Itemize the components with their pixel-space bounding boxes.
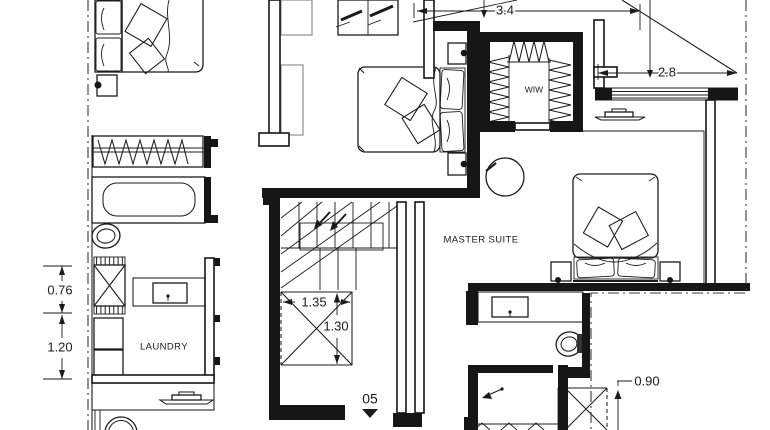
level-number-text: 05 [362, 391, 378, 407]
window-right [595, 88, 738, 100]
dim-duct-width: 0.90 [615, 373, 660, 430]
toilet-master-bath [553, 328, 586, 359]
wiw-hangers [488, 41, 571, 125]
nightstand-top-left [95, 75, 118, 96]
nightstand-master-right [660, 262, 680, 283]
dim-duct-width-text: 0.90 [634, 373, 659, 388]
dim-right-width: 2.8 [598, 0, 737, 80]
bathtub [92, 177, 205, 223]
toilet-left [90, 222, 121, 250]
stairs [281, 202, 397, 290]
floor-plan-canvas: 3.4 2.8 0.76 1.20 1.35 1.30 0.90 [0, 0, 770, 430]
water-heater [105, 417, 137, 430]
ac-louver [160, 392, 213, 404]
laundry-sink-counter [133, 278, 205, 306]
balcony-band [92, 383, 214, 430]
bed-master [573, 174, 658, 281]
shower-arrow-icon [482, 387, 504, 399]
dim-laundry-height: 1.20 [43, 315, 73, 379]
dim-void-width-text: 1.35 [301, 294, 326, 309]
dim-right-width-text: 2.8 [658, 64, 676, 79]
nightstand-master-left [551, 262, 571, 283]
vanity-sink [478, 292, 583, 322]
dim-void-depth-text: 1.30 [323, 318, 348, 333]
master-stool [486, 158, 524, 196]
bed-center [358, 67, 465, 152]
level-marker-arrow-icon [362, 409, 378, 418]
dim-laundry-height-text: 1.20 [47, 339, 72, 354]
dim-shaft-height-text: 0.76 [47, 282, 72, 297]
bed-top-left [95, 0, 203, 74]
wiw-label: WIW [525, 84, 543, 94]
level-marker: 05 [362, 391, 378, 418]
laundry-label: LAUNDRY [140, 342, 188, 353]
wardrobe-outline-gray [281, 0, 312, 135]
master-suite-label: MASTER SUITE [443, 235, 518, 246]
shower-threshold [466, 423, 568, 430]
dim-top-width-text: 3.4 [496, 2, 514, 17]
dim-shaft-height: 0.76 [43, 266, 73, 313]
walls [92, 0, 750, 430]
nightstand-center-top [448, 43, 467, 64]
nightstand-center-bottom [448, 153, 467, 175]
washer-1 [94, 318, 123, 349]
master-tv-shelf [595, 109, 645, 120]
duct-shaft-left [94, 257, 125, 314]
closet-hangers-left [93, 136, 203, 167]
wardrobe-top-center [336, 0, 398, 35]
